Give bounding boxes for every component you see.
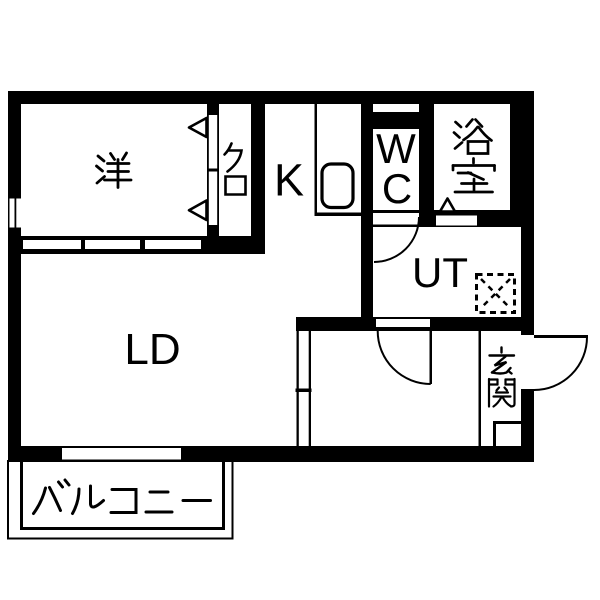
svg-text:LD: LD	[124, 325, 180, 374]
svg-text:C: C	[382, 165, 412, 212]
svg-text:K: K	[274, 155, 304, 206]
svg-text:UT: UT	[412, 249, 468, 296]
